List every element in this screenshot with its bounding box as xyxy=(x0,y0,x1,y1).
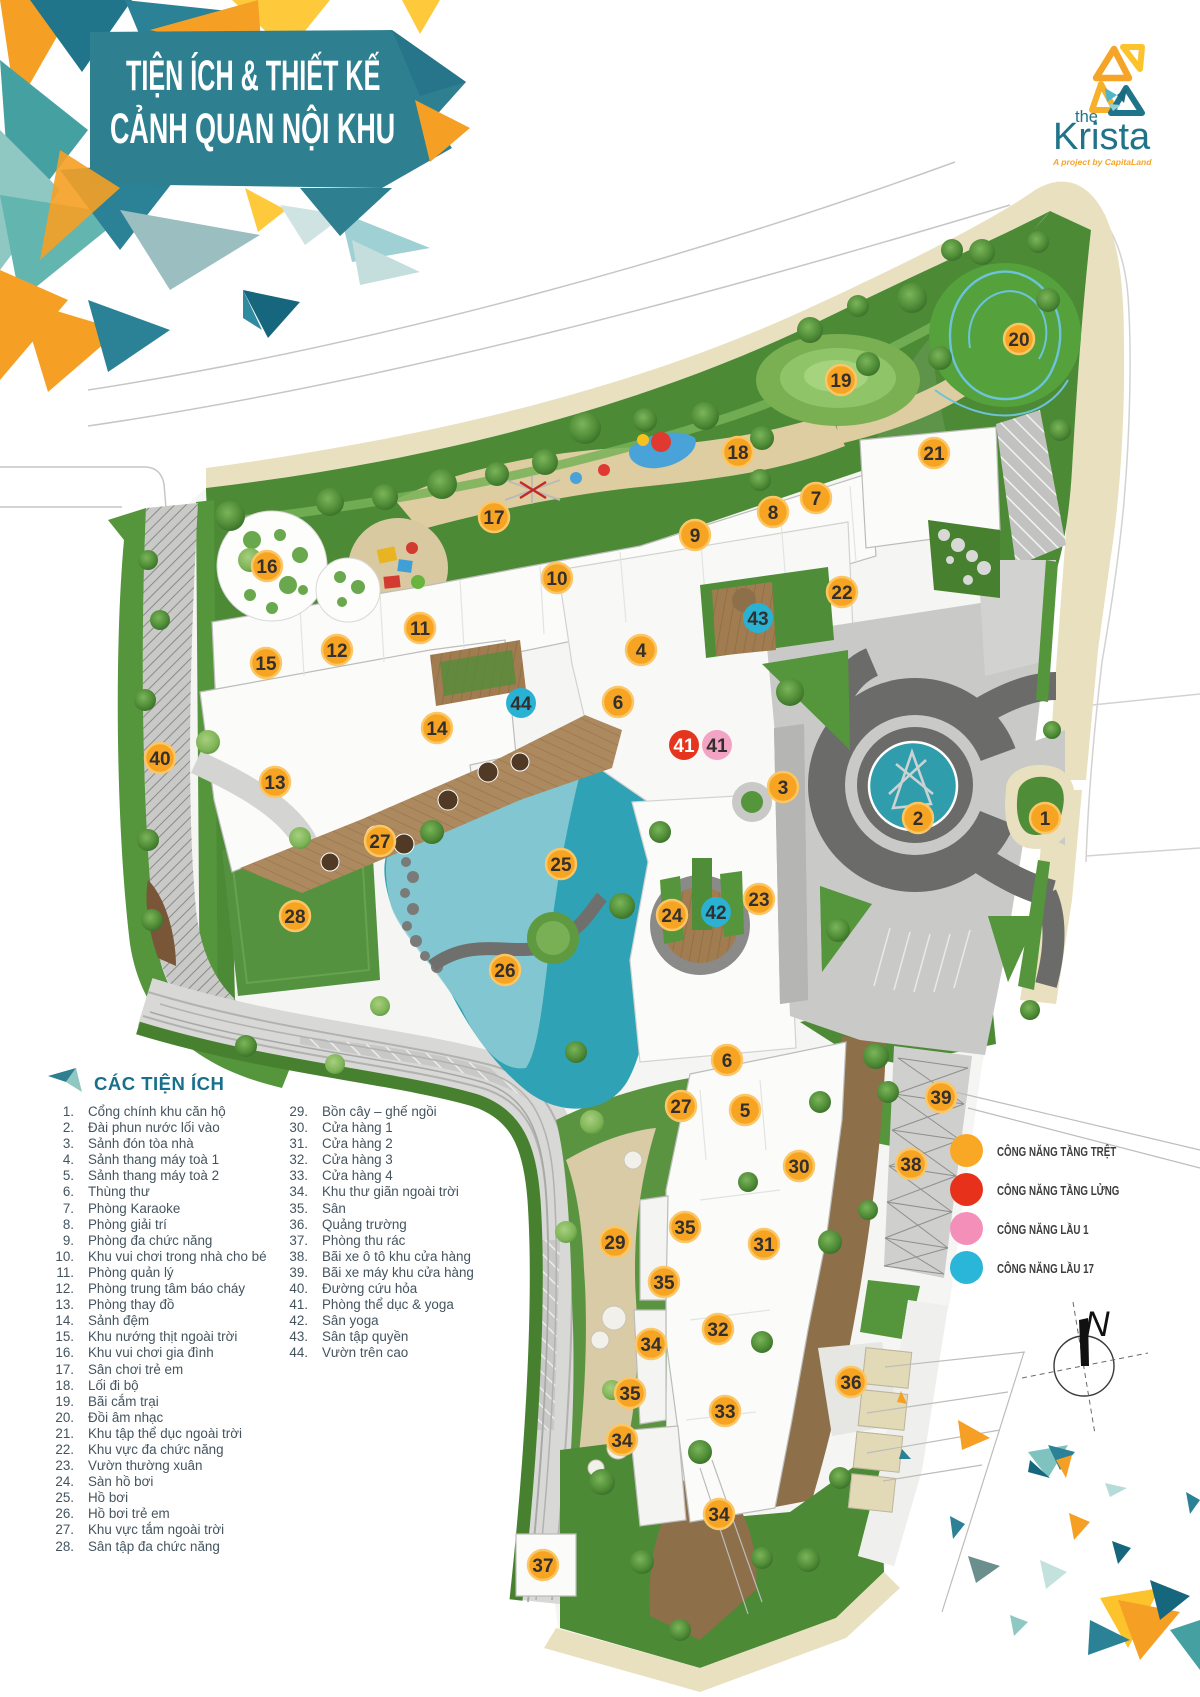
svg-text:33: 33 xyxy=(714,1402,735,1423)
svg-text:35: 35 xyxy=(619,1384,641,1405)
svg-text:18: 18 xyxy=(727,443,748,464)
svg-text:34: 34 xyxy=(611,1431,633,1452)
svg-text:43: 43 xyxy=(747,609,768,630)
svg-text:39: 39 xyxy=(930,1088,951,1109)
svg-text:6: 6 xyxy=(722,1051,733,1072)
svg-text:34: 34 xyxy=(708,1505,730,1526)
svg-text:35: 35 xyxy=(653,1273,675,1294)
svg-text:20: 20 xyxy=(1008,330,1029,351)
svg-text:19: 19 xyxy=(830,371,851,392)
svg-text:6: 6 xyxy=(613,693,624,714)
svg-text:10: 10 xyxy=(546,569,567,590)
svg-text:23: 23 xyxy=(748,890,769,911)
svg-text:8: 8 xyxy=(768,503,779,524)
svg-text:17: 17 xyxy=(483,508,504,529)
svg-text:37: 37 xyxy=(532,1556,553,1577)
svg-text:31: 31 xyxy=(753,1235,775,1256)
svg-text:34: 34 xyxy=(640,1335,662,1356)
svg-text:15: 15 xyxy=(255,654,277,675)
svg-text:36: 36 xyxy=(840,1373,861,1394)
svg-text:30: 30 xyxy=(788,1157,809,1178)
svg-text:32: 32 xyxy=(707,1320,728,1341)
svg-text:2: 2 xyxy=(913,809,924,830)
svg-text:11: 11 xyxy=(410,619,431,640)
svg-text:42: 42 xyxy=(705,903,726,924)
svg-text:1: 1 xyxy=(1040,809,1051,830)
svg-text:35: 35 xyxy=(674,1218,696,1239)
svg-text:21: 21 xyxy=(923,444,945,465)
svg-text:5: 5 xyxy=(740,1101,751,1122)
svg-text:25: 25 xyxy=(550,855,572,876)
svg-text:22: 22 xyxy=(831,583,852,604)
svg-text:16: 16 xyxy=(256,557,277,578)
svg-text:7: 7 xyxy=(811,489,822,510)
svg-text:28: 28 xyxy=(284,907,305,928)
svg-text:3: 3 xyxy=(778,778,789,799)
svg-text:4: 4 xyxy=(636,641,647,662)
svg-text:38: 38 xyxy=(900,1155,921,1176)
svg-text:24: 24 xyxy=(661,906,683,927)
svg-text:N: N xyxy=(1084,1305,1110,1344)
svg-text:27: 27 xyxy=(369,832,390,853)
svg-text:12: 12 xyxy=(326,641,347,662)
svg-text:27: 27 xyxy=(670,1097,691,1118)
svg-text:14: 14 xyxy=(426,719,448,740)
svg-text:26: 26 xyxy=(494,961,515,982)
svg-text:9: 9 xyxy=(690,526,701,547)
svg-text:13: 13 xyxy=(264,773,285,794)
svg-text:Krista: Krista xyxy=(1053,116,1151,158)
svg-text:29: 29 xyxy=(604,1233,625,1254)
svg-text:44: 44 xyxy=(510,694,532,715)
svg-text:A project by CapitaLand: A project by CapitaLand xyxy=(1052,157,1152,167)
svg-text:41: 41 xyxy=(673,736,695,757)
svg-text:41: 41 xyxy=(706,736,728,757)
svg-text:40: 40 xyxy=(149,749,170,770)
